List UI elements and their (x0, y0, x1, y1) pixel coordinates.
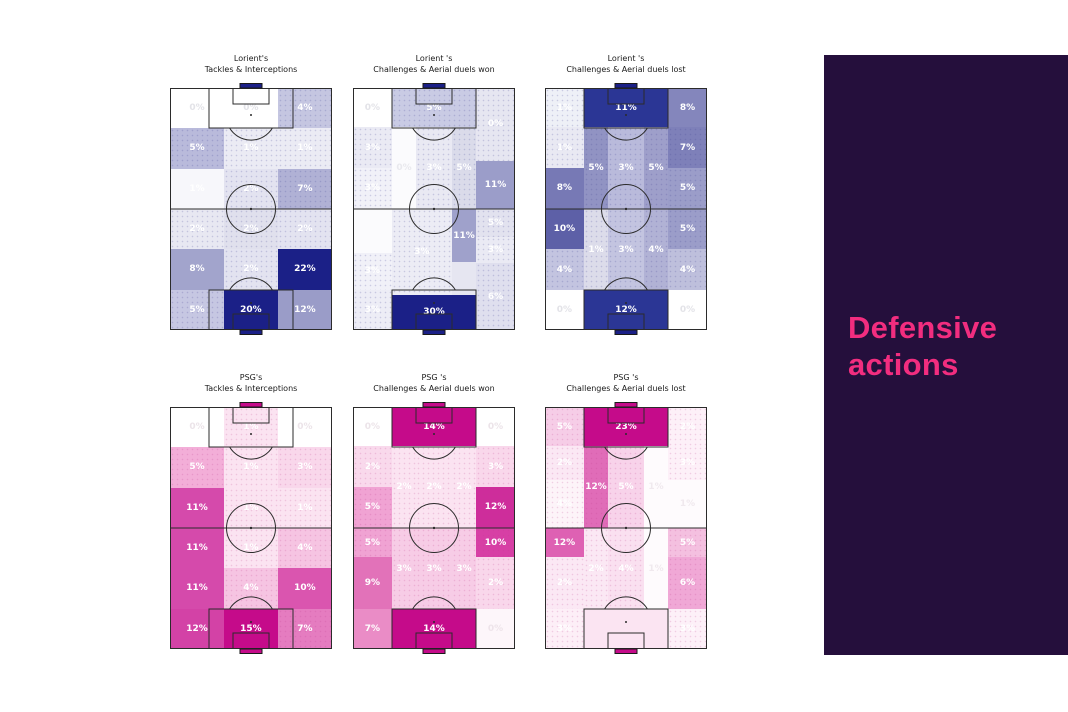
pitch-title: PSG 's Challenges & Aerial duels won (333, 373, 535, 394)
pitch-field: 1%11%8%1%7%5%3%5%8%5%10%5%1%3%4%4%4%0%12… (545, 88, 707, 330)
pitch-title-metric: Challenges & Aerial duels won (333, 65, 535, 76)
goal-top (423, 84, 445, 89)
goal-bottom (423, 649, 445, 654)
center-spot (433, 527, 435, 529)
pitch-title: PSG 's Challenges & Aerial duels lost (525, 373, 727, 394)
pitch-lorient-duels-lost: Lorient 's Challenges & Aerial duels los… (545, 54, 707, 336)
penalty-spot-bottom (433, 302, 435, 304)
pitch-markings (545, 407, 707, 649)
pitch-markings (353, 88, 515, 330)
pitch-title: Lorient 's Challenges & Aerial duels los… (525, 54, 727, 75)
panel-title: Defensive actions (848, 309, 1053, 383)
pitch-field: 5%23%2%2%3%12%5%1%4%1%12%5%2%4%1%2%6%3%3… (545, 407, 707, 649)
pitch-title-team: PSG 's (525, 373, 727, 384)
side-panel: Defensive actions (824, 55, 1068, 655)
pitch-markings (170, 407, 332, 649)
penalty-spot-bottom (250, 621, 252, 623)
pitch-field: 0%14%0%2%3%2%2%2%5%12%5%10%3%3%3%9%2%7%1… (353, 407, 515, 649)
pitch-title-metric: Challenges & Aerial duels lost (525, 384, 727, 395)
pitch-markings (170, 88, 332, 330)
goal-top (615, 84, 637, 89)
pitch-field: 0%1%0%5%1%3%11%1%1%11%1%4%11%4%10%12%15%… (170, 407, 332, 649)
penalty-spot-top (625, 114, 627, 116)
penalty-spot-top (250, 114, 252, 116)
penalty-spot-top (625, 433, 627, 435)
penalty-spot-bottom (625, 621, 627, 623)
pitch-psg-duels-won: PSG 's Challenges & Aerial duels won 0%1… (353, 373, 515, 655)
pitch-title: Lorient's Tackles & Interceptions (150, 54, 352, 75)
pitch-title-team: Lorient 's (525, 54, 727, 65)
penalty-spot-top (250, 433, 252, 435)
center-spot (433, 208, 435, 210)
penalty-spot-bottom (625, 302, 627, 304)
pitch-title-metric: Challenges & Aerial duels lost (525, 65, 727, 76)
goal-bottom (240, 649, 262, 654)
pitch-title-team: Lorient 's (333, 54, 535, 65)
goal-bottom (423, 330, 445, 335)
center-spot (250, 527, 252, 529)
goal-top (240, 84, 262, 89)
penalty-spot-top (433, 114, 435, 116)
goal-bottom (615, 330, 637, 335)
goal-top (240, 403, 262, 408)
center-spot (250, 208, 252, 210)
center-spot (625, 208, 627, 210)
goal-bottom (240, 330, 262, 335)
pitch-title-metric: Tackles & Interceptions (150, 65, 352, 76)
pitch-field: 0%5%0%3%3%0%3%5%11%3%3%11%5%3%6%3%30% (353, 88, 515, 330)
pitch-title-metric: Tackles & Interceptions (150, 384, 352, 395)
pitch-field: 0%0%4%5%1%1%1%2%7%2%2%2%8%2%22%5%20%12% (170, 88, 332, 330)
pitch-title-team: PSG's (150, 373, 352, 384)
pitch-title: Lorient 's Challenges & Aerial duels won (333, 54, 535, 75)
canvas: Lorient's Tackles & Interceptions 0%0%4%… (0, 0, 1068, 712)
goal-top (615, 403, 637, 408)
pitch-markings (545, 88, 707, 330)
penalty-spot-top (433, 433, 435, 435)
pitch-title-metric: Challenges & Aerial duels won (333, 384, 535, 395)
pitch-title-team: Lorient's (150, 54, 352, 65)
pitch-psg-duels-lost: PSG 's Challenges & Aerial duels lost 5%… (545, 373, 707, 655)
pitch-lorient-duels-won: Lorient 's Challenges & Aerial duels won… (353, 54, 515, 336)
penalty-spot-bottom (433, 621, 435, 623)
pitch-markings (353, 407, 515, 649)
pitch-lorient-tackles-interceptions: Lorient's Tackles & Interceptions 0%0%4%… (170, 54, 332, 336)
goal-top (423, 403, 445, 408)
pitch-title-team: PSG 's (333, 373, 535, 384)
penalty-spot-bottom (250, 302, 252, 304)
pitch-psg-tackles-interceptions: PSG's Tackles & Interceptions 0%1%0%5%1%… (170, 373, 332, 655)
center-spot (625, 527, 627, 529)
pitch-title: PSG's Tackles & Interceptions (150, 373, 352, 394)
goal-bottom (615, 649, 637, 654)
